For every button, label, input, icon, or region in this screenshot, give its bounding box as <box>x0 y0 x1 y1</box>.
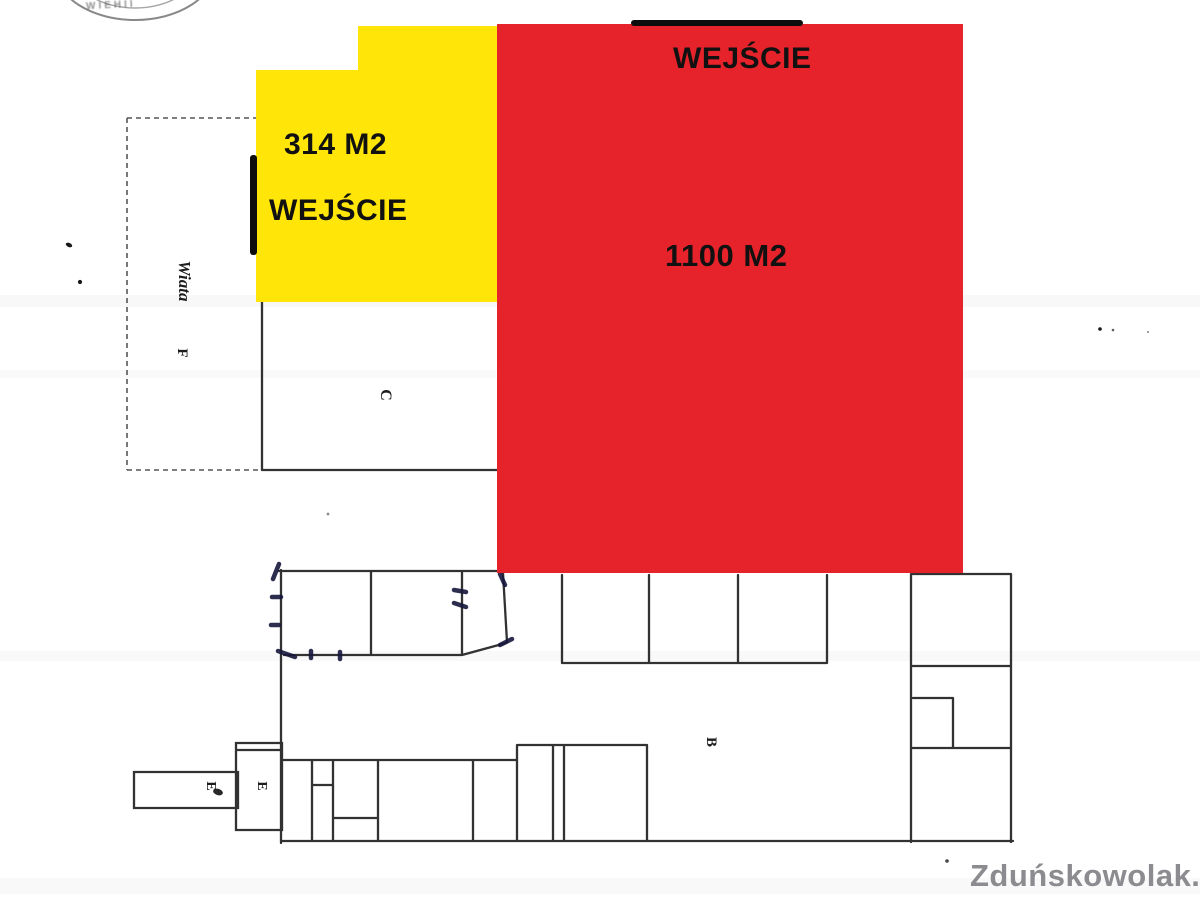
site-watermark: Zduńskowolak.pl <box>970 858 1200 894</box>
red-area-label: 1100 M2 <box>665 238 787 274</box>
ink-marks <box>271 564 512 659</box>
yellow-entrance-marker-bar <box>250 155 257 255</box>
red-zone-overlay <box>497 24 963 573</box>
scanned-plan-page: WIEHII Wiata F C B E E 314 M2 WEJŚCIE WE… <box>0 0 1200 901</box>
yellow-entrance-label: WEJŚCIE <box>269 194 408 228</box>
label-room-c: C <box>376 385 394 405</box>
yellow-zone-overlay <box>256 70 497 302</box>
red-entrance-marker-line <box>631 20 803 26</box>
label-annex-e-left: E <box>203 776 217 796</box>
yellow-area-label: 314 M2 <box>284 128 387 162</box>
yellow-zone-overlay <box>358 26 497 72</box>
label-hall-b: B <box>703 732 719 752</box>
label-room-f: F <box>173 343 191 363</box>
label-annex-e-mid: E <box>254 776 268 796</box>
red-entrance-label: WEJŚCIE <box>673 42 812 76</box>
label-wiata: Wiata <box>173 253 195 309</box>
